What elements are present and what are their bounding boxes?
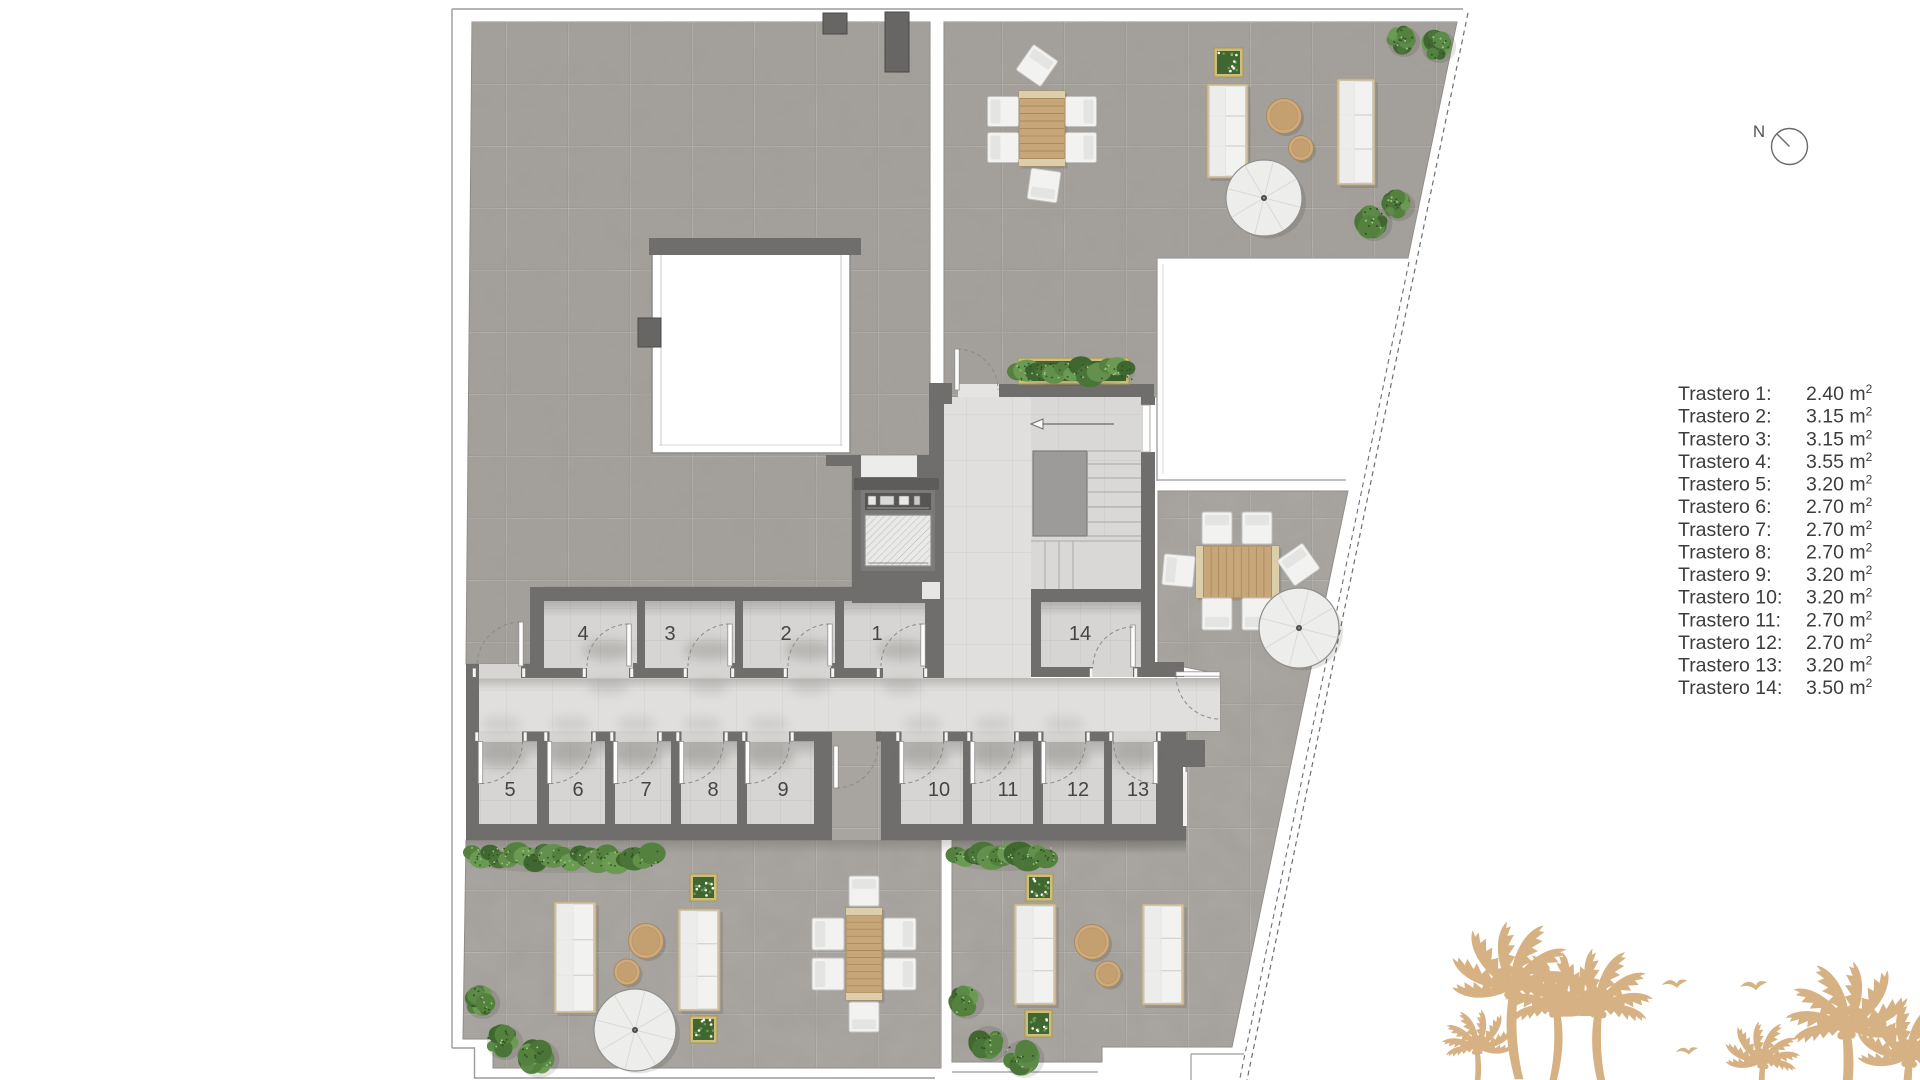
- svg-text:Trastero 12:: Trastero 12:: [1678, 632, 1782, 654]
- svg-text:N: N: [1753, 122, 1765, 141]
- svg-text:Trastero 2:: Trastero 2:: [1678, 406, 1772, 428]
- svg-text:Trastero 14:: Trastero 14:: [1678, 677, 1782, 699]
- svg-text:2.70 m2: 2.70 m2: [1806, 540, 1873, 563]
- svg-text:2: 2: [780, 623, 791, 645]
- svg-text:Trastero 4:: Trastero 4:: [1678, 451, 1772, 473]
- svg-text:Trastero 13:: Trastero 13:: [1678, 655, 1782, 677]
- svg-text:3.20 m2: 3.20 m2: [1806, 473, 1873, 496]
- svg-text:2.70 m2: 2.70 m2: [1806, 495, 1873, 518]
- svg-text:Trastero 5:: Trastero 5:: [1678, 474, 1772, 496]
- svg-text:1: 1: [871, 623, 882, 645]
- svg-text:3.55 m2: 3.55 m2: [1806, 450, 1873, 473]
- svg-text:7: 7: [640, 779, 651, 801]
- svg-text:12: 12: [1067, 779, 1089, 801]
- svg-text:5: 5: [504, 779, 515, 801]
- svg-text:2.70 m2: 2.70 m2: [1806, 608, 1873, 631]
- svg-text:2.70 m2: 2.70 m2: [1806, 631, 1873, 654]
- svg-text:10: 10: [928, 779, 950, 801]
- svg-text:Trastero 3:: Trastero 3:: [1678, 428, 1772, 450]
- svg-text:Trastero 6:: Trastero 6:: [1678, 496, 1772, 518]
- svg-text:Trastero 8:: Trastero 8:: [1678, 541, 1772, 563]
- svg-text:9: 9: [777, 779, 788, 801]
- svg-text:11: 11: [998, 779, 1019, 801]
- svg-text:3.15 m2: 3.15 m2: [1806, 427, 1873, 450]
- svg-text:Trastero 10:: Trastero 10:: [1678, 587, 1782, 609]
- svg-text:6: 6: [572, 779, 583, 801]
- svg-text:8: 8: [707, 779, 718, 801]
- svg-text:3.20 m2: 3.20 m2: [1806, 586, 1873, 609]
- svg-text:Trastero 7:: Trastero 7:: [1678, 519, 1772, 541]
- svg-text:3.20 m2: 3.20 m2: [1806, 563, 1873, 586]
- svg-text:Trastero 9:: Trastero 9:: [1678, 564, 1772, 586]
- svg-text:Trastero 11:: Trastero 11:: [1678, 609, 1781, 631]
- svg-text:14: 14: [1069, 623, 1091, 645]
- svg-text:3.15 m2: 3.15 m2: [1806, 405, 1873, 428]
- svg-text:2.70 m2: 2.70 m2: [1806, 518, 1873, 541]
- svg-text:3.50 m2: 3.50 m2: [1806, 676, 1873, 699]
- svg-text:3.20 m2: 3.20 m2: [1806, 654, 1873, 677]
- svg-text:4: 4: [577, 623, 588, 645]
- svg-text:Trastero 1:: Trastero 1:: [1678, 383, 1772, 405]
- svg-text:2.40 m2: 2.40 m2: [1806, 382, 1873, 405]
- svg-text:3: 3: [664, 623, 675, 645]
